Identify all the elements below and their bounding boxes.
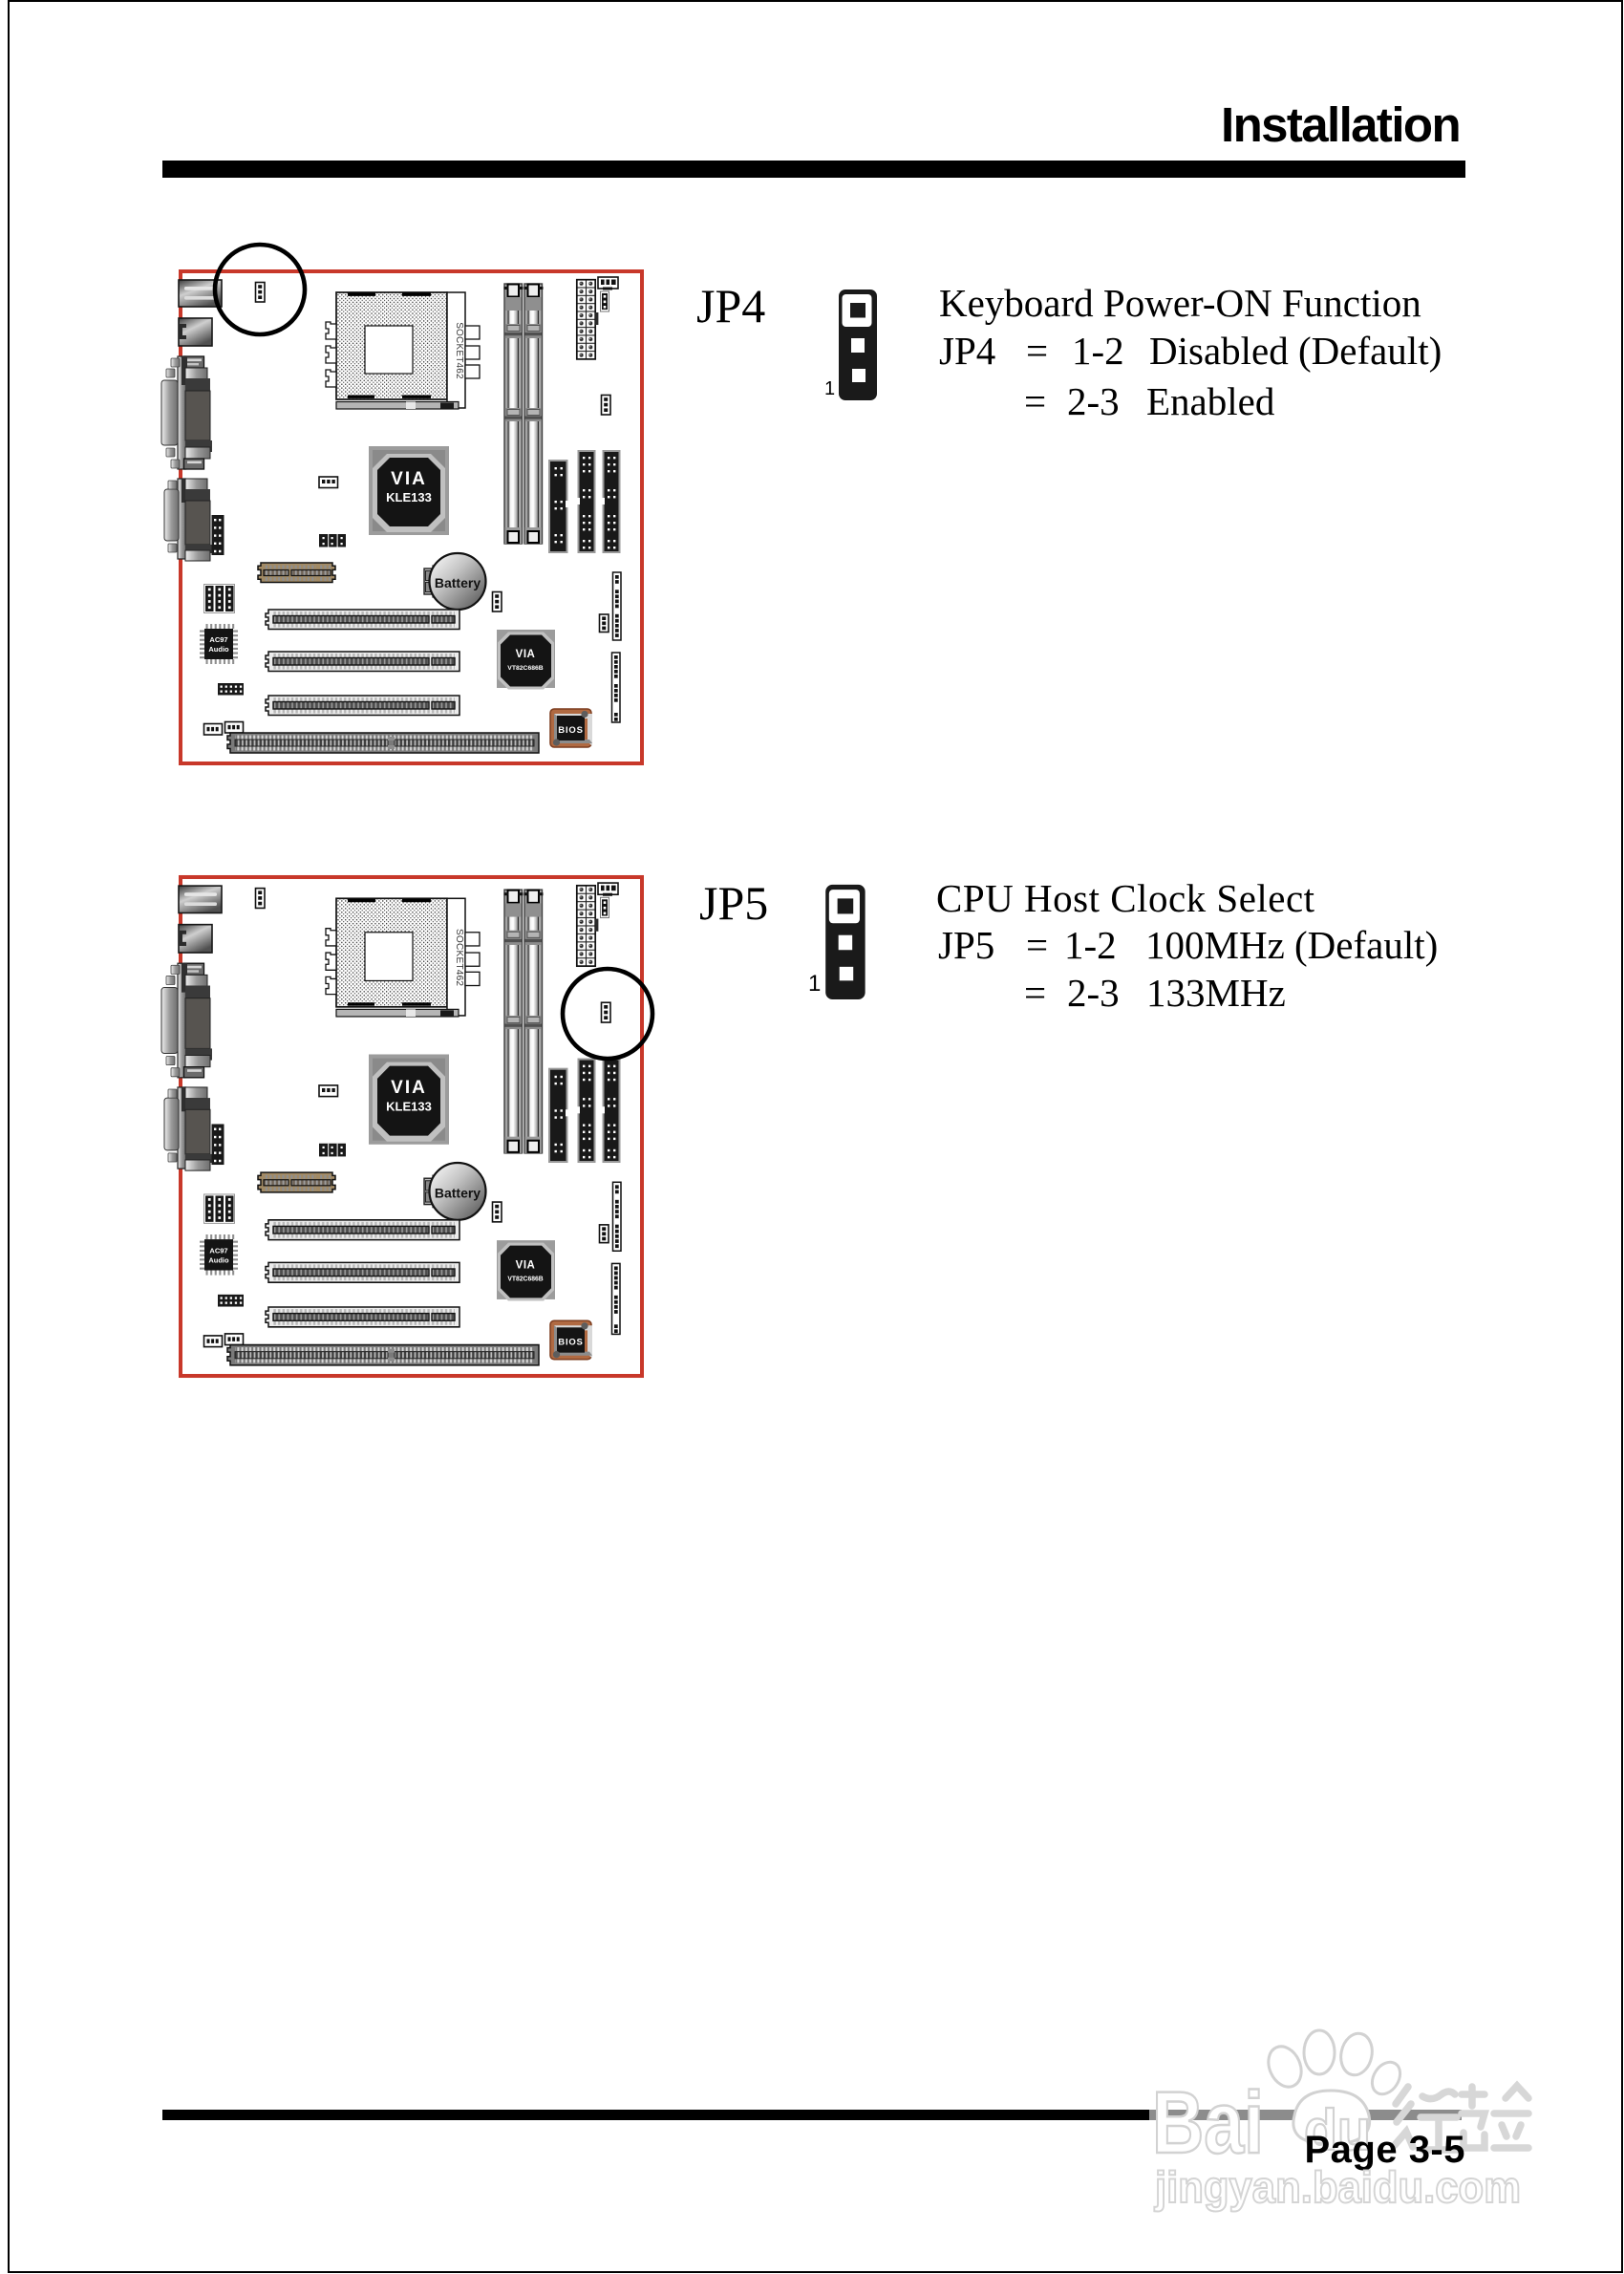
svg-text:VIA: VIA: [391, 469, 427, 489]
svg-text:VIA: VIA: [516, 649, 536, 660]
svg-text:SOCKET462: SOCKET462: [454, 322, 464, 379]
svg-text:Battery: Battery: [435, 575, 481, 590]
svg-text:VT82C686B: VT82C686B: [507, 665, 543, 672]
svg-text:jingyan.baidu.com: jingyan.baidu.com: [1154, 2162, 1521, 2212]
svg-text:Audio: Audio: [208, 645, 229, 654]
svg-text:AC97: AC97: [209, 635, 227, 644]
svg-text:BIOS: BIOS: [558, 725, 583, 736]
svg-text:KLE133: KLE133: [386, 490, 432, 504]
